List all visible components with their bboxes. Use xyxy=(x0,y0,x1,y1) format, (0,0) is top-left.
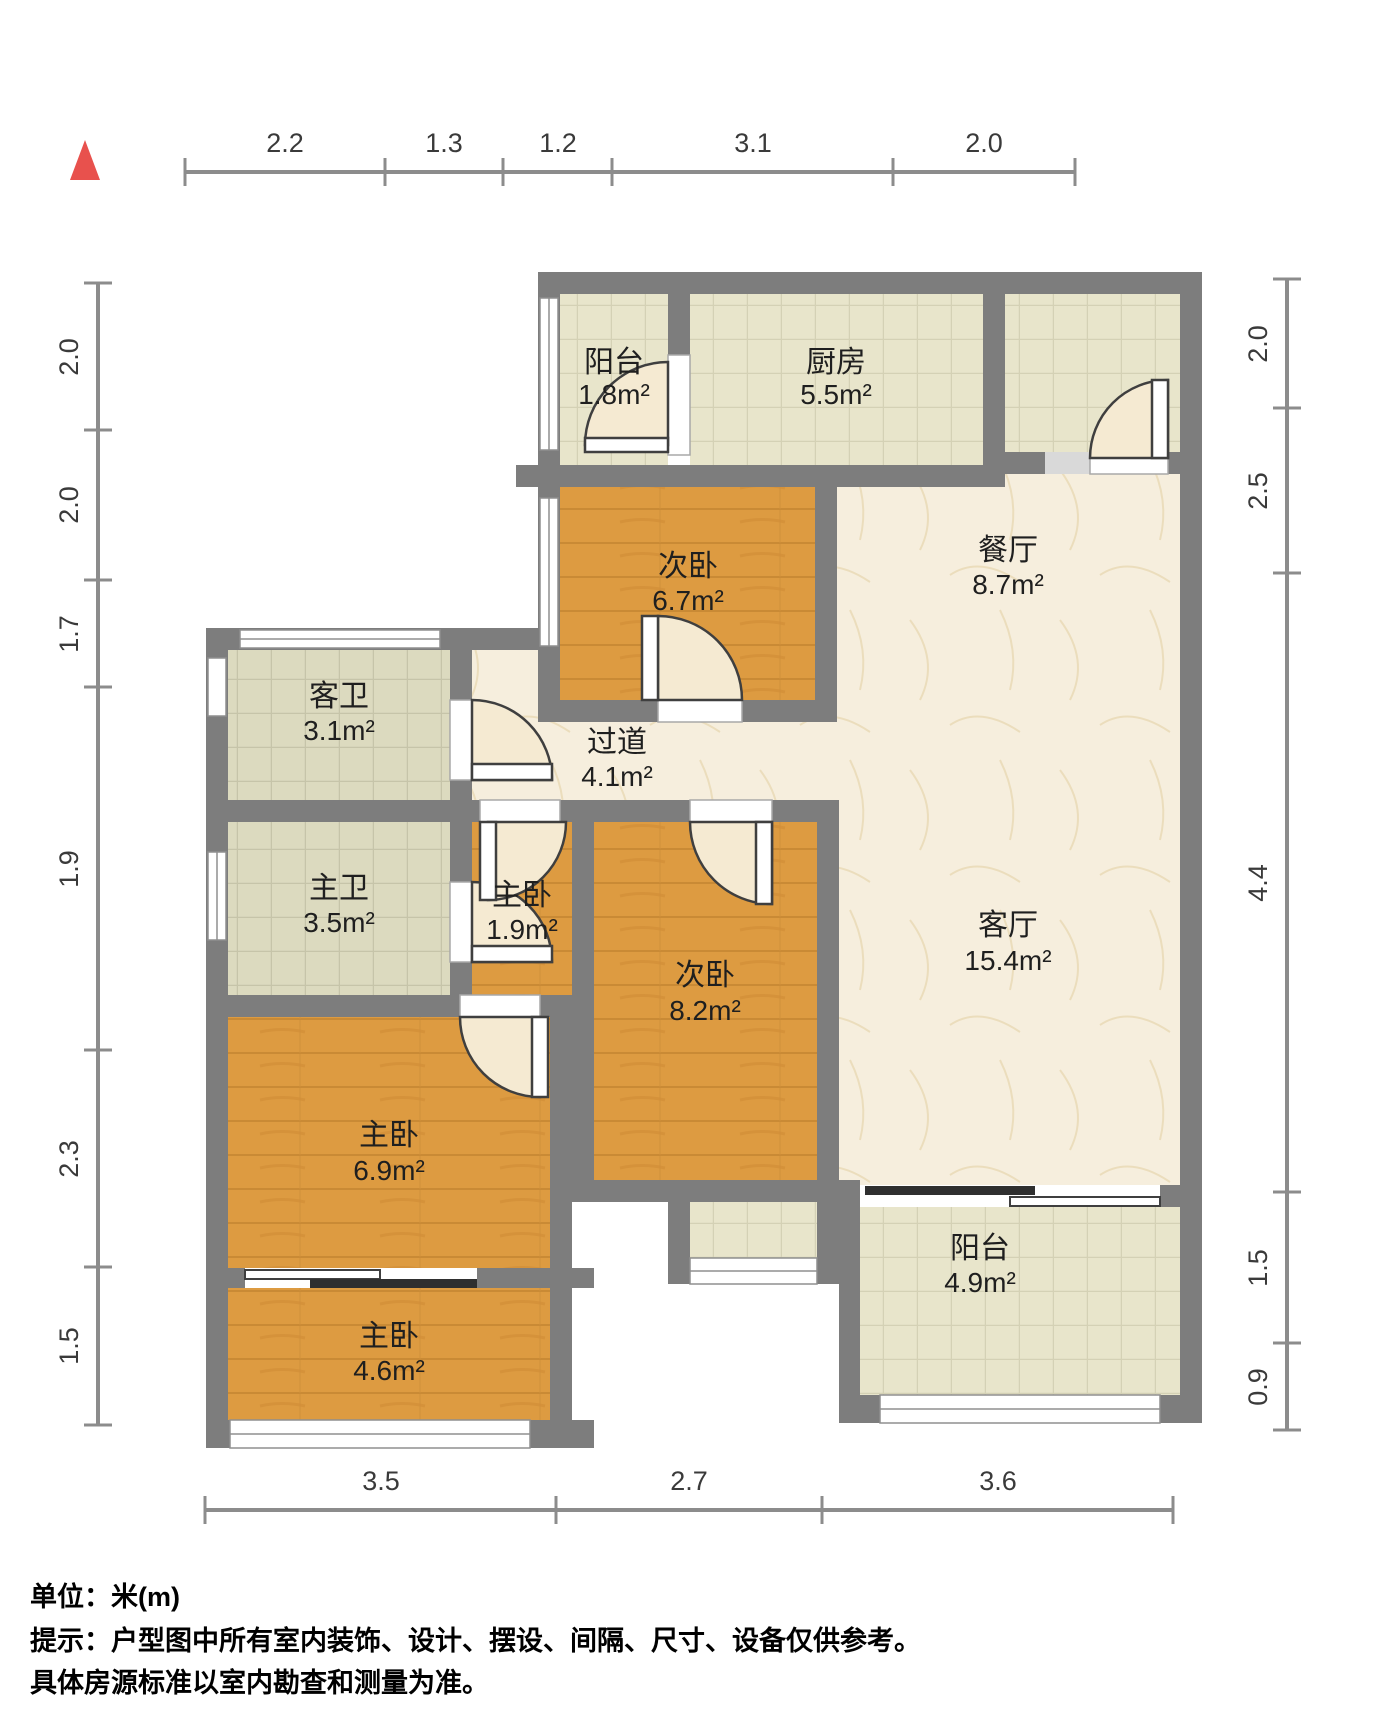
wall-segment xyxy=(817,800,839,1180)
room-area-bath-guest: 3.1m² xyxy=(303,715,375,746)
wall-segment xyxy=(1168,452,1180,474)
room-label-bedroom-second-upper: 次卧 xyxy=(658,550,718,583)
footer-tip-line1: 提示：户型图中所有室内装饰、设计、摆设、间隔、尺寸、设备仅供参考。 xyxy=(30,1625,921,1656)
wall-segment xyxy=(572,1017,594,1180)
wall-segment xyxy=(477,1268,594,1288)
opening xyxy=(460,995,540,1017)
floor-plan: 阳台 1.8m² 厨房 5.5m² 次卧 6.7m² 餐厅 8.7m² 客卫 3… xyxy=(0,0,1389,1720)
wall-segment xyxy=(206,800,480,822)
footer-tip-line2: 具体房源标准以室内勘查和测量为准。 xyxy=(30,1667,489,1698)
door-leaf xyxy=(472,764,552,780)
dim-label: 1.9 xyxy=(54,850,84,888)
wall-segment xyxy=(206,995,460,1017)
wall-segment xyxy=(572,1180,839,1202)
dim-label: 2.0 xyxy=(965,128,1003,158)
room-area-bedroom-second-lower: 8.2m² xyxy=(669,995,741,1026)
wall-segment xyxy=(742,700,837,722)
floor-utility-nook xyxy=(690,1202,817,1258)
dim-label: 2.0 xyxy=(54,338,84,376)
wall-segment xyxy=(815,465,837,722)
dimension-left: 2.0 2.0 1.7 1.9 2.3 1.5 xyxy=(54,283,112,1425)
floor-balcony-bottom xyxy=(860,1207,1180,1395)
entry-step xyxy=(1045,452,1090,474)
dim-label: 4.4 xyxy=(1243,864,1273,902)
north-arrow-icon xyxy=(70,140,100,180)
window xyxy=(208,658,226,716)
dimension-bottom: 3.5 2.7 3.6 xyxy=(205,1466,1173,1524)
dim-label: 3.6 xyxy=(979,1466,1017,1496)
opening xyxy=(658,700,742,722)
door-leaf xyxy=(585,438,668,452)
room-label-dining: 餐厅 xyxy=(978,534,1038,567)
room-label-hallway: 过道 xyxy=(587,726,647,759)
opening xyxy=(668,355,690,455)
dim-label: 2.0 xyxy=(1243,325,1273,363)
room-area-bedroom-master-bottom: 4.6m² xyxy=(353,1355,425,1386)
wall-segment xyxy=(1160,1395,1202,1423)
room-area-balcony-top: 1.8m² xyxy=(578,379,650,410)
footer: 单位：米(m) 提示：户型图中所有室内装饰、设计、摆设、间隔、尺寸、设备仅供参考… xyxy=(30,1581,921,1698)
dim-label: 2.7 xyxy=(670,1466,708,1496)
room-area-bath-master: 3.5m² xyxy=(303,907,375,938)
room-label-bedroom-master-mid: 主卧 xyxy=(359,1119,419,1152)
wall-segment xyxy=(668,1202,690,1284)
wall-segment xyxy=(1180,272,1202,1395)
dim-label: 3.1 xyxy=(734,128,772,158)
footer-unit-label: 单位：米(m) xyxy=(30,1581,180,1612)
room-label-bath-master: 主卫 xyxy=(309,872,369,905)
dim-label: 1.2 xyxy=(539,128,577,158)
room-label-bedroom-master-bottom: 主卧 xyxy=(359,1320,419,1353)
room-area-bedroom-master-mid: 6.9m² xyxy=(353,1155,425,1186)
door-leaf xyxy=(472,946,552,962)
opening xyxy=(690,800,772,822)
wall-segment xyxy=(450,780,472,882)
wall-segment xyxy=(572,800,594,995)
door-leaf xyxy=(756,822,772,904)
wall-segment xyxy=(839,1180,860,1395)
wall-segment xyxy=(1160,1185,1180,1207)
dim-label: 1.7 xyxy=(54,615,84,653)
wall-segment xyxy=(1005,452,1045,474)
door-leaf xyxy=(1152,380,1168,458)
door-leaf xyxy=(642,616,658,700)
wall-segment xyxy=(540,995,594,1017)
sliding-door-panel xyxy=(245,1270,380,1279)
dim-label: 0.9 xyxy=(1243,1368,1273,1406)
wall-segment xyxy=(206,628,228,1448)
wall-segment xyxy=(839,1395,880,1423)
dim-label: 3.5 xyxy=(362,1466,400,1496)
dimension-top: 2.2 1.3 1.2 3.1 2.0 xyxy=(185,128,1075,186)
sliding-door-panel xyxy=(1010,1197,1160,1206)
room-area-balcony-bottom: 4.9m² xyxy=(944,1267,1016,1298)
wall-segment xyxy=(817,1202,839,1284)
door-leaf xyxy=(532,1017,548,1097)
dim-label: 1.3 xyxy=(425,128,463,158)
room-label-living: 客厅 xyxy=(978,909,1038,942)
room-label-bedroom-second-lower: 次卧 xyxy=(675,959,735,992)
wall-segment xyxy=(550,1017,572,1420)
sliding-door-panel xyxy=(310,1279,477,1288)
wall-segment xyxy=(538,272,1202,294)
room-area-bedroom-second-upper: 6.7m² xyxy=(652,585,724,616)
room-label-bath-guest: 客卫 xyxy=(309,680,369,713)
room-label-bedroom-master-small: 主卧 xyxy=(492,879,552,912)
dim-label: 2.3 xyxy=(54,1140,84,1178)
wall-segment xyxy=(450,628,472,700)
room-area-hallway: 4.1m² xyxy=(581,761,653,792)
wall-segment xyxy=(983,272,1005,465)
floor-bedroom-master-bottom xyxy=(228,1288,550,1420)
wall-segment xyxy=(538,700,658,722)
room-label-balcony-top: 阳台 xyxy=(584,346,644,379)
room-area-kitchen: 5.5m² xyxy=(800,379,872,410)
sliding-door-panel xyxy=(865,1186,1035,1195)
room-area-dining: 8.7m² xyxy=(972,569,1044,600)
opening xyxy=(480,800,560,822)
room-label-balcony-bottom: 阳台 xyxy=(950,1232,1010,1265)
room-area-living: 15.4m² xyxy=(964,945,1051,976)
opening xyxy=(450,700,472,780)
dim-label: 2.5 xyxy=(1243,472,1273,510)
wall-segment xyxy=(206,1420,230,1448)
wall-segment xyxy=(206,1268,245,1288)
dim-label: 1.5 xyxy=(1243,1249,1273,1287)
opening xyxy=(450,882,472,962)
dim-label: 1.5 xyxy=(54,1327,84,1365)
room-label-kitchen: 厨房 xyxy=(806,346,866,379)
dimension-right: 2.0 2.5 4.4 1.5 0.9 xyxy=(1243,279,1301,1430)
dim-label: 2.2 xyxy=(266,128,304,158)
wall-segment xyxy=(516,465,1005,487)
wall-segment xyxy=(530,1420,594,1448)
room-area-bedroom-master-small: 1.9m² xyxy=(486,914,558,945)
dim-label: 2.0 xyxy=(54,486,84,524)
